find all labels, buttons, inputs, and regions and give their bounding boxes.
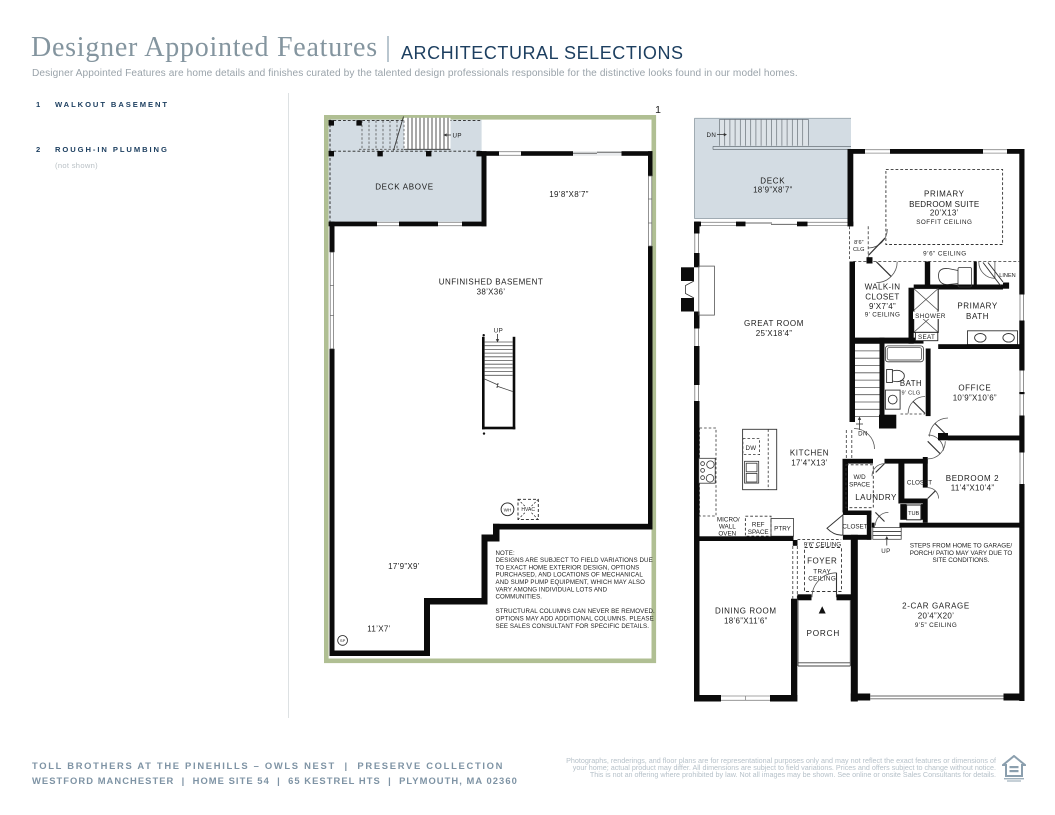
svg-text:BATH: BATH: [966, 312, 989, 321]
svg-text:HVAC: HVAC: [521, 507, 535, 513]
svg-text:WH: WH: [504, 507, 512, 512]
svg-text:11’X7’: 11’X7’: [367, 624, 390, 633]
svg-text:CLOSET: CLOSET: [842, 523, 867, 530]
svg-text:SEE SALES CONSULTANT FOR SPECI: SEE SALES CONSULTANT FOR SPECIFIC DETAIL…: [496, 623, 650, 630]
svg-text:COMMUNITIES.: COMMUNITIES.: [496, 594, 543, 601]
svg-text:TO EXACT HOME EXTERIOR DESIGN,: TO EXACT HOME EXTERIOR DESIGN, OPTIONS: [496, 564, 640, 571]
svg-text:38’X36’: 38’X36’: [477, 288, 506, 297]
svg-text:W/D: W/D: [853, 474, 866, 481]
svg-text:VARY AMONG INDIVIDUAL LOTS AND: VARY AMONG INDIVIDUAL LOTS AND: [496, 586, 608, 593]
svg-text:9’5” CEILING: 9’5” CEILING: [915, 622, 957, 629]
svg-text:SEAT: SEAT: [918, 334, 935, 341]
svg-text:PRIMARY: PRIMARY: [924, 190, 965, 199]
svg-text:REF: REF: [752, 522, 765, 529]
svg-text:20’X13’: 20’X13’: [930, 209, 959, 218]
svg-text:PTRY: PTRY: [774, 525, 791, 532]
svg-text:UNFINISHED BASEMENT: UNFINISHED BASEMENT: [439, 277, 544, 286]
svg-text:1: 1: [655, 104, 661, 116]
svg-text:AND SUMP PUMP EQUIPMENT, WHICH: AND SUMP PUMP EQUIPMENT, WHICH MAY ALSO: [496, 579, 646, 586]
svg-text:LINEN: LINEN: [999, 273, 1015, 279]
svg-text:KITCHEN: KITCHEN: [790, 449, 829, 458]
svg-text:DECK ABOVE: DECK ABOVE: [375, 183, 434, 192]
svg-text:STRUCTURAL COLUMNS CAN NEVER B: STRUCTURAL COLUMNS CAN NEVER BE REMOVED.: [496, 608, 656, 615]
svg-text:SHOWER: SHOWER: [915, 313, 946, 320]
svg-text:9’ CLG: 9’ CLG: [901, 390, 920, 396]
svg-text:FOYER: FOYER: [807, 557, 837, 566]
svg-text:BEDROOM SUITE: BEDROOM SUITE: [909, 200, 979, 209]
svg-text:TUB: TUB: [908, 511, 919, 517]
svg-text:SITE CONDITIONS.: SITE CONDITIONS.: [932, 557, 989, 564]
svg-text:2-CAR GARAGE: 2-CAR GARAGE: [902, 602, 970, 611]
svg-text:OFFICE: OFFICE: [958, 384, 991, 393]
svg-text:DINING ROOM: DINING ROOM: [715, 607, 777, 616]
svg-text:CEILING: CEILING: [808, 575, 836, 582]
svg-text:8’6”: 8’6”: [854, 240, 863, 246]
svg-text:PORCH: PORCH: [807, 629, 841, 638]
svg-text:PURCHASED, AND LOCATIONS OF ME: PURCHASED, AND LOCATIONS OF MECHANICAL: [496, 572, 644, 579]
svg-text:17’4”X13’: 17’4”X13’: [791, 458, 828, 467]
svg-text:BATH: BATH: [900, 379, 922, 388]
svg-text:25’X18’4”: 25’X18’4”: [756, 329, 793, 338]
svg-text:BEDROOM 2: BEDROOM 2: [946, 474, 999, 483]
svg-text:9’ CEILING: 9’ CEILING: [865, 312, 901, 319]
svg-text:SPACE: SPACE: [748, 529, 769, 536]
svg-text:DN: DN: [858, 430, 868, 437]
svg-text:11’4”X10’4”: 11’4”X10’4”: [951, 484, 995, 493]
svg-text:9’6” CEILING: 9’6” CEILING: [923, 250, 966, 257]
svg-text:SPACE: SPACE: [849, 481, 870, 488]
svg-text:WALK-IN: WALK-IN: [865, 283, 901, 292]
svg-text:17’9”X9’: 17’9”X9’: [388, 562, 420, 571]
svg-text:DESIGNS ARE SUBJECT TO FIELD V: DESIGNS ARE SUBJECT TO FIELD VARIATIONS …: [496, 557, 653, 564]
svg-text:19’8”X8’7”: 19’8”X8’7”: [549, 190, 589, 199]
svg-text:SP: SP: [340, 638, 346, 643]
svg-text:GREAT ROOM: GREAT ROOM: [744, 319, 804, 328]
svg-text:UP: UP: [453, 133, 462, 140]
svg-text:OPTIONS MAY ADD ADDITIONAL COL: OPTIONS MAY ADD ADDITIONAL COLUMNS. PLEA…: [496, 616, 654, 623]
svg-text:CLOSET: CLOSET: [865, 293, 899, 302]
svg-text:STEPS FROM HOME TO GARAGE/: STEPS FROM HOME TO GARAGE/: [910, 543, 1013, 550]
svg-text:MICRO/: MICRO/: [717, 516, 740, 523]
svg-text:18’9”X8’7”: 18’9”X8’7”: [753, 186, 793, 195]
svg-text:DECK: DECK: [760, 176, 785, 185]
svg-text:20’4”X20’: 20’4”X20’: [918, 612, 955, 621]
svg-text:NOTE:: NOTE:: [496, 550, 515, 557]
svg-text:10’9”X10’6”: 10’9”X10’6”: [953, 393, 997, 402]
svg-text:PRIMARY: PRIMARY: [957, 301, 998, 310]
svg-text:DW: DW: [746, 445, 757, 452]
svg-text:CLOSET: CLOSET: [907, 479, 932, 486]
svg-text:UP: UP: [881, 548, 890, 555]
svg-text:PORCH/ PATIO MAY VARY DUE TO: PORCH/ PATIO MAY VARY DUE TO: [910, 550, 1013, 557]
svg-text:CLG: CLG: [853, 247, 865, 253]
svg-text:WALL: WALL: [719, 524, 736, 531]
svg-text:UP: UP: [494, 328, 503, 335]
svg-text:18’6”X11’6”: 18’6”X11’6”: [724, 617, 768, 626]
svg-text:DN: DN: [707, 132, 717, 139]
svg-text:SOFFIT CEILING: SOFFIT CEILING: [916, 219, 972, 226]
svg-text:9’X7’4”: 9’X7’4”: [869, 302, 896, 311]
svg-text:LAUNDRY: LAUNDRY: [855, 493, 897, 502]
